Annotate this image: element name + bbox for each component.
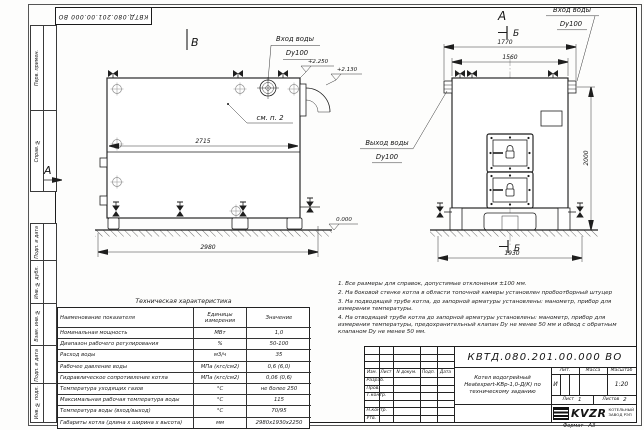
outlet-text: Выход воды xyxy=(365,139,409,147)
spec-cell-value: 50-100 xyxy=(247,339,311,350)
inlet-label-side: Вход воды Dy100 xyxy=(268,35,320,81)
company-name: КОТЕЛЬНЫЙ ЗАВОД РЭП xyxy=(608,408,634,417)
spec-cell-unit: °С xyxy=(194,384,247,395)
view-marker-b: В xyxy=(187,29,199,50)
dim-text: 2000 xyxy=(583,150,590,165)
section-marker-b-top: Б xyxy=(498,26,519,39)
tb-designation: КВТД.080.201.00.000 ВО xyxy=(454,347,636,367)
format-value: А3 xyxy=(588,423,595,429)
spec-cell-name: Диапазон рабочего регулирования xyxy=(58,339,194,350)
elevation-text: 0.000 xyxy=(336,217,352,223)
section-letter: Б xyxy=(513,29,519,39)
view-letter-a-front: А xyxy=(497,9,506,23)
spec-cell-value: 0,06 (0,6) xyxy=(247,373,311,384)
tb-col-sign: Подп. xyxy=(420,368,437,377)
dim-text: 1770 xyxy=(497,39,512,46)
ground-front xyxy=(430,230,598,237)
spec-header: Единицы измерения xyxy=(194,308,247,328)
spec-cell-name: Температура воды (вход/выход) xyxy=(58,406,194,417)
tb-mass-header: Масса xyxy=(579,367,607,374)
note-item: 1. Все размеры для справок, допустимые о… xyxy=(338,281,630,288)
spec-cell-value: не более 250 xyxy=(247,384,311,395)
dim-2000: 2000 xyxy=(572,87,595,230)
view-letter: В xyxy=(191,36,199,49)
note-item: 4. На отводящей трубе котла до запорной … xyxy=(338,315,630,337)
inlet-text: Вход воды xyxy=(553,6,592,14)
spec-cell-value: 0,6 (6,0) xyxy=(247,362,311,373)
tb-sheet: Лист 1 xyxy=(551,395,593,404)
lower-door xyxy=(487,172,533,208)
spec-cell-value: 2980х1930х2250 xyxy=(247,418,311,428)
spec-cell-value: 1,0 xyxy=(247,328,311,339)
tb-sheets: Листов 2 xyxy=(593,395,636,404)
spec-cell-unit: м3/ч xyxy=(194,350,247,361)
spec-header: Значение xyxy=(247,308,311,328)
note-item: 2. На боковой стенке котла в области топ… xyxy=(338,290,630,297)
tb-col-list: Лист xyxy=(379,368,393,377)
inlet-flange-front xyxy=(568,81,576,93)
tb-sheets-label: Листов xyxy=(602,397,619,402)
inlet-label-front: Вход воды Dy100 xyxy=(546,6,599,81)
inlet-dn-text: Dy100 xyxy=(560,20,582,28)
view-marker-a-left: А xyxy=(43,164,62,180)
top-valves-side xyxy=(108,70,288,78)
top-valves-front xyxy=(455,70,558,78)
tb-col-doc: N докум. xyxy=(393,368,420,377)
tb-sheet-label: Лист xyxy=(563,397,574,402)
tb-doc-name-line: техническому заданию xyxy=(469,389,535,396)
spec-header: Наименование показателя xyxy=(58,308,194,328)
spec-cell-unit: МПа (кгс/см2) xyxy=(194,373,247,384)
front-view: 1560 1770 2000 1930 Б xyxy=(360,6,599,262)
spec-cell-name: Температура уходящих газов xyxy=(58,384,194,395)
spec-cell-value: 35 xyxy=(247,350,311,361)
outlet-flange-front xyxy=(444,81,452,93)
tb-sheets-value: 2 xyxy=(623,397,627,403)
dim-text: 2715 xyxy=(195,138,210,145)
spec-cell-unit: мм xyxy=(194,418,247,428)
spec-cell-name: Номинальная мощность xyxy=(58,328,194,339)
spec-cell-unit: МВт xyxy=(194,328,247,339)
spec-table-title: Техническая характеристика xyxy=(57,298,310,305)
inlet-dn-text: Dy100 xyxy=(286,49,308,57)
tb-col-izm: Изм. xyxy=(365,368,379,377)
kvzr-logo-text: KVZR xyxy=(571,407,606,420)
dim-text: 1560 xyxy=(502,54,517,61)
tb-row-utv: Утв. xyxy=(365,415,395,423)
spec-cell-unit: % xyxy=(194,339,247,350)
spec-cell-name: Расход воды xyxy=(58,350,194,361)
tb-row-razrab: Разраб. xyxy=(365,377,395,385)
note-item: 3. На подводящей трубе котла, до запорно… xyxy=(338,299,630,314)
tb-doc-name-line: Heatexpert-КВр-1,0-Д(К) по xyxy=(464,382,541,389)
upper-door xyxy=(487,134,533,172)
section-letter: Б xyxy=(514,244,520,254)
see-note-text: см. п. 2 xyxy=(256,114,284,122)
spec-cell-value: 115 xyxy=(247,395,311,406)
outlet-label: Выход воды Dy100 xyxy=(360,91,447,163)
spec-cell-unit: МПа (кгс/см2) xyxy=(194,362,247,373)
format-note: Формат А3 xyxy=(563,423,596,429)
elevation-zero: 0.000 xyxy=(329,217,358,230)
outlet-elbow xyxy=(300,84,330,116)
spec-cell-name: Гидравлическое сопротивление котла xyxy=(58,373,194,384)
elevation-text: +2.130 xyxy=(337,67,358,73)
tb-lit-value: И xyxy=(551,374,560,395)
tb-sheet-value: 1 xyxy=(578,397,582,403)
outlet-dn-text: Dy100 xyxy=(376,153,398,161)
boiler-body-side xyxy=(107,78,300,218)
inlet-text: Вход воды xyxy=(276,35,315,43)
spec-cell-unit: °С xyxy=(194,406,247,417)
kvzr-logo-icon xyxy=(553,407,569,420)
tb-row-nkontr: Н.контр. xyxy=(365,407,395,415)
spec-cell-name: Рабочее давление воды xyxy=(58,362,194,373)
ground-side xyxy=(95,230,332,237)
spec-cell-name: Габариты котла (длина х ширина х высота) xyxy=(58,418,194,428)
nameplate xyxy=(541,111,562,126)
drawing-sheet: Перв. примен. Справ. № Подп. и дата Инв.… xyxy=(0,0,644,430)
tb-scale-header: Масштаб xyxy=(607,367,636,374)
tb-doc-name-line: Котел водогрейный xyxy=(474,375,531,382)
view-letter: А xyxy=(43,164,52,177)
legs-side xyxy=(108,218,302,229)
spec-table-grid: Наименование показателя Единицы измерени… xyxy=(57,307,310,429)
tb-scale-value: 1:20 xyxy=(607,374,636,395)
tb-row-prov: Пров. xyxy=(365,385,395,393)
spec-cell-name: Максимальная рабочая температура воды xyxy=(58,395,194,406)
tb-company: KVZR КОТЕЛЬНЫЙ ЗАВОД РЭП xyxy=(551,404,636,422)
tb-row-tkontr: Т.контр. xyxy=(365,392,395,400)
tb-col-date: Дата xyxy=(437,368,454,377)
dim-text: 2980 xyxy=(200,244,215,251)
elevation-text: +2.250 xyxy=(308,59,329,65)
title-block: Изм. Лист N докум. Подп. Дата Разраб. Пр… xyxy=(364,346,637,423)
spec-cell-value: 70/95 xyxy=(247,406,311,417)
format-label: Формат xyxy=(563,423,583,429)
elevation-top: +2.250 xyxy=(300,59,334,78)
spec-cell-unit: °С xyxy=(194,395,247,406)
tb-lit-header: Лит. xyxy=(551,367,579,374)
spec-table: Техническая характеристика Наименование … xyxy=(57,298,310,429)
side-view: см. п. 2 2715 xyxy=(43,29,362,257)
tb-doc-name: Котел водогрейный Heatexpert-КВр-1,0-Д(К… xyxy=(454,367,551,404)
notes-block: 1. Все размеры для справок, допустимые о… xyxy=(338,281,630,338)
elevation-pipe: +2.130 xyxy=(326,67,362,85)
